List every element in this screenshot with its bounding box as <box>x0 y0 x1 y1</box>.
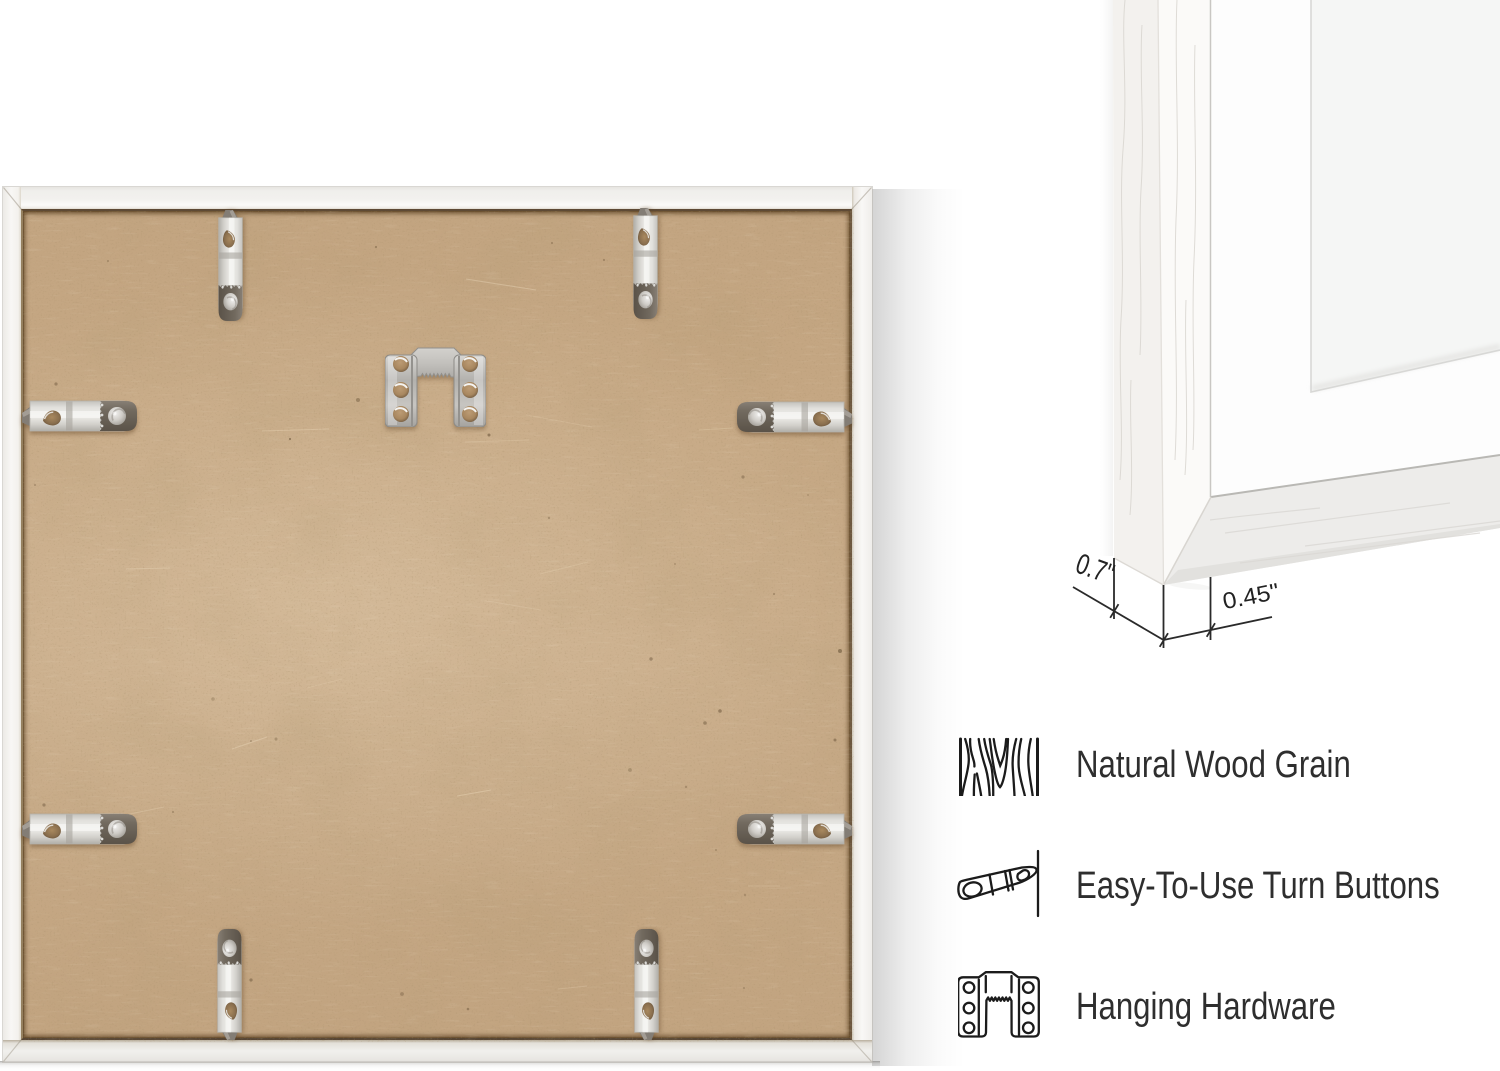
svg-text:0.45": 0.45" <box>1220 578 1281 614</box>
